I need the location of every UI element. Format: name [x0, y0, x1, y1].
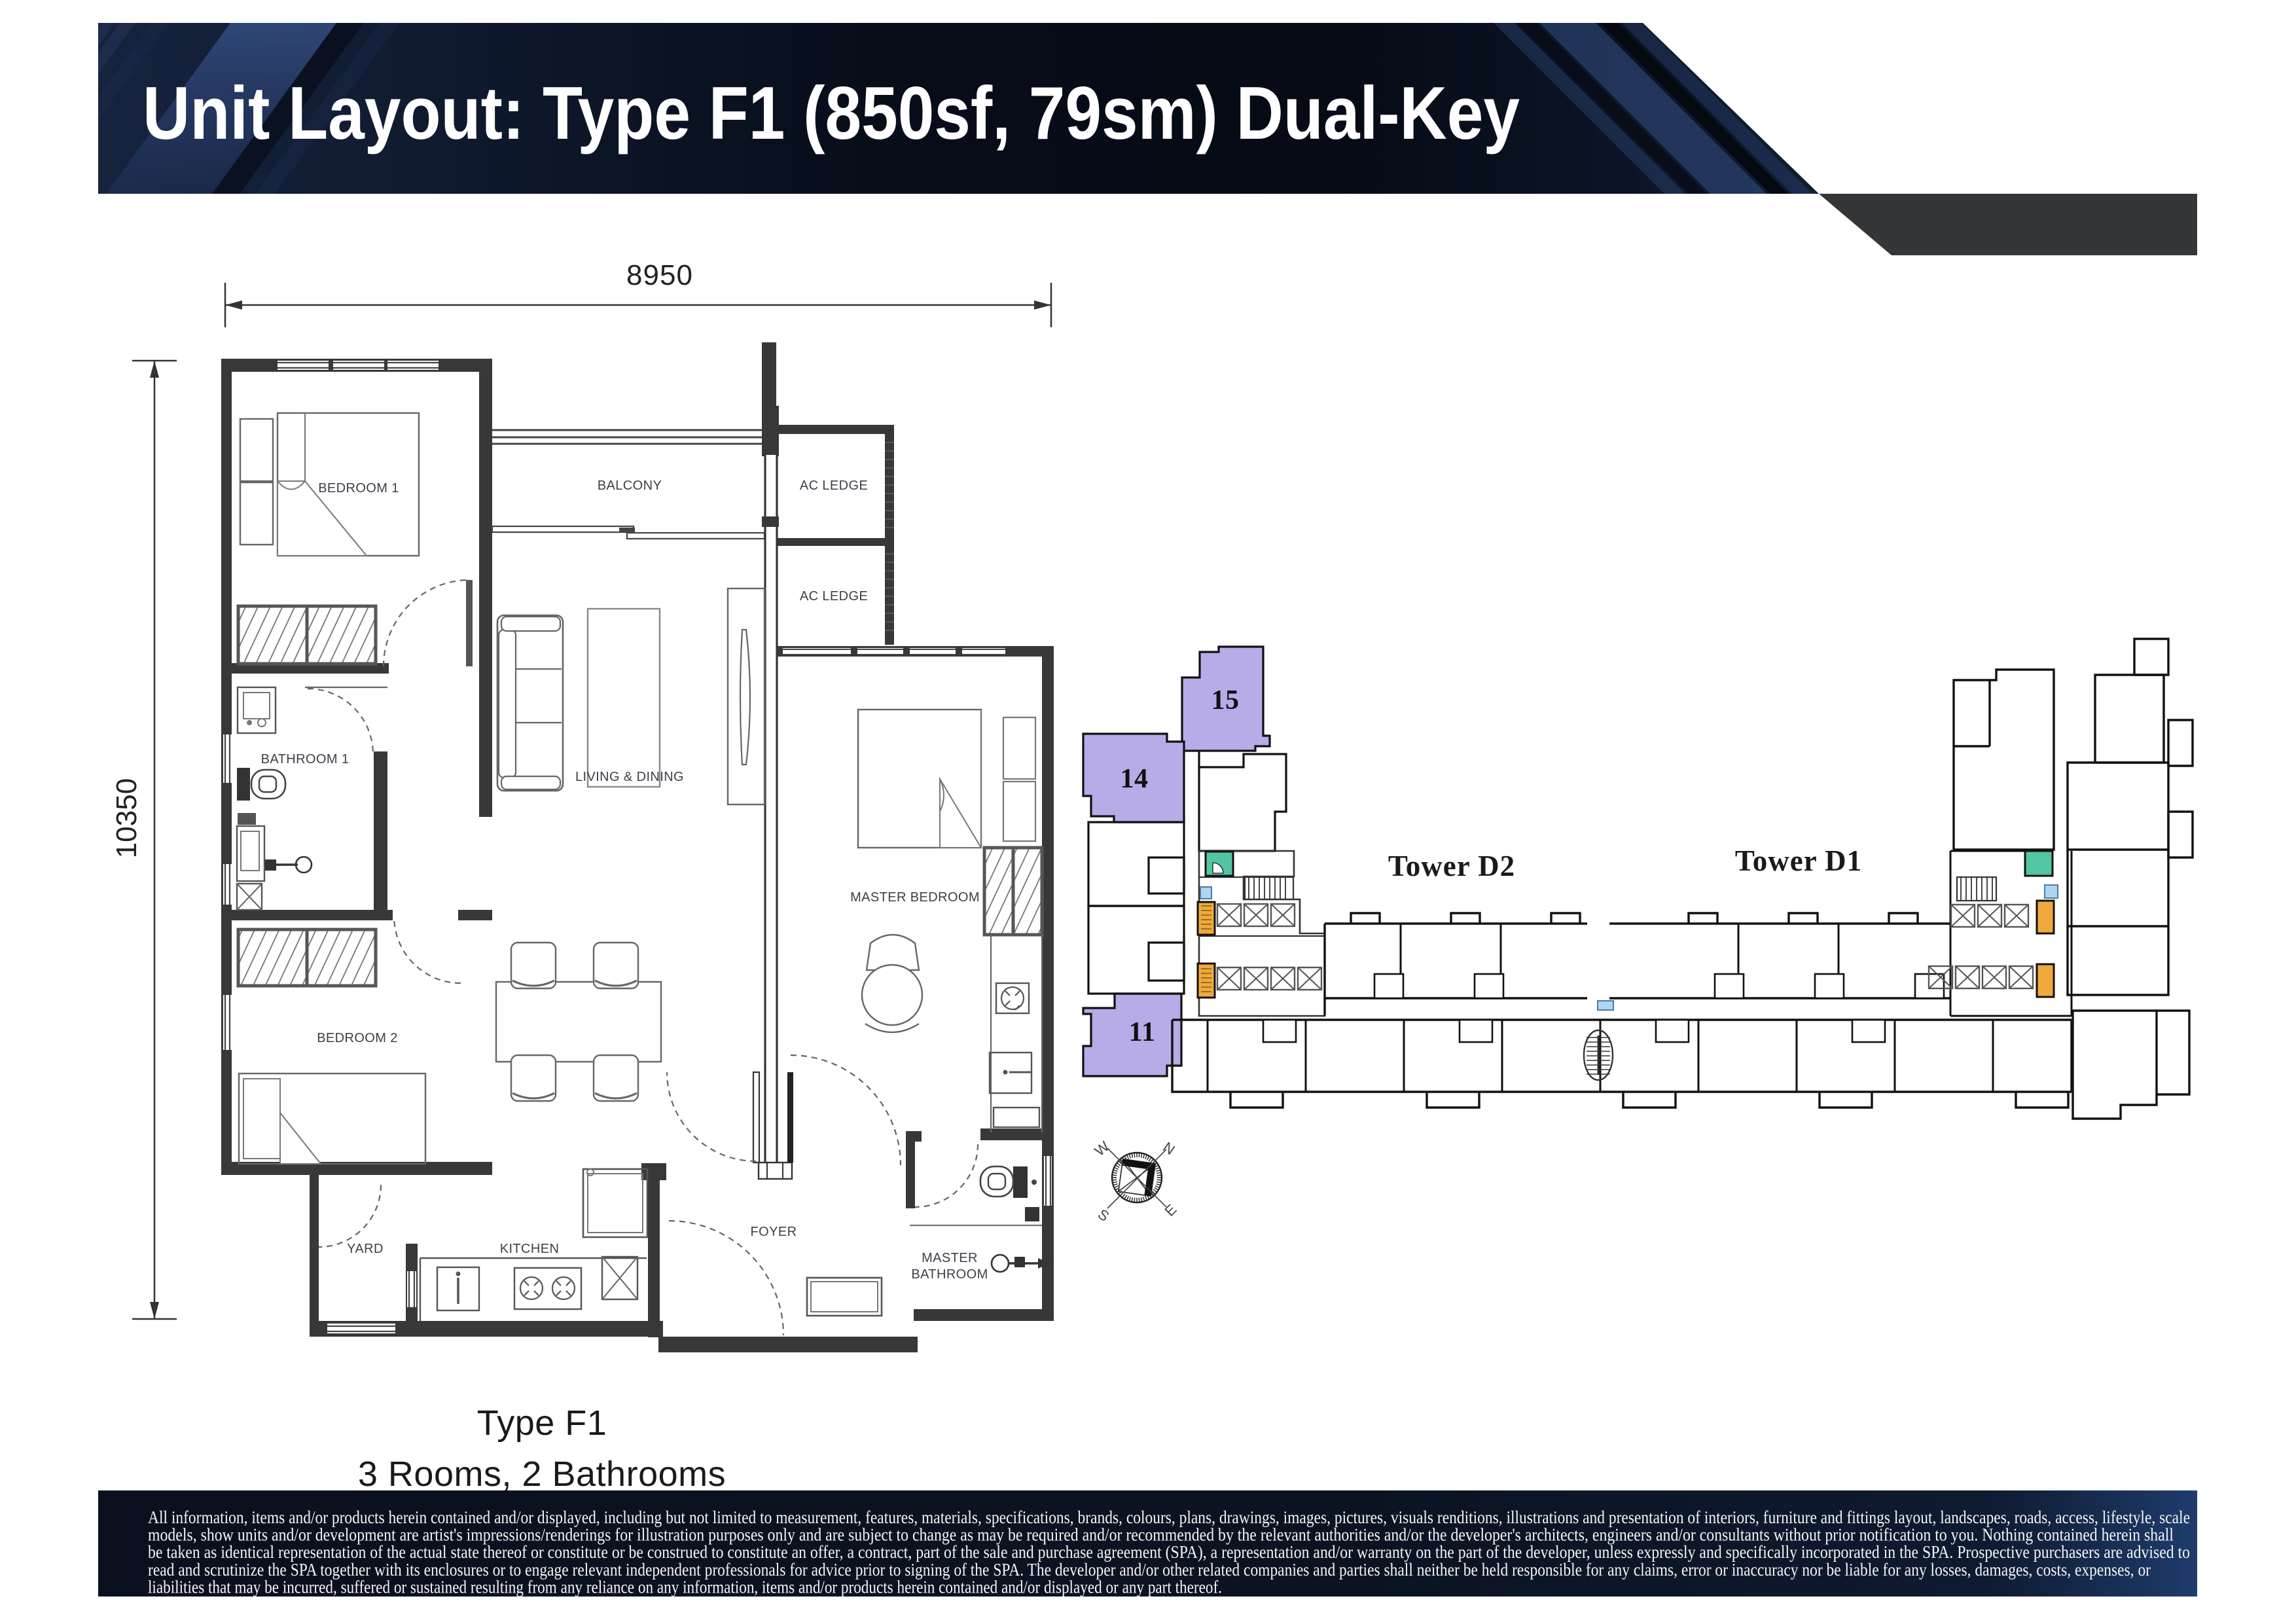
svg-text:BEDROOM 1: BEDROOM 1 [318, 481, 399, 496]
svg-text:AC LEDGE: AC LEDGE [800, 478, 868, 493]
svg-text:8950: 8950 [626, 259, 693, 291]
svg-text:15: 15 [1211, 685, 1240, 715]
svg-text:BEDROOM 2: BEDROOM 2 [317, 1031, 398, 1045]
svg-text:AC LEDGE: AC LEDGE [800, 589, 868, 604]
svg-text:MASTER: MASTER [922, 1251, 978, 1265]
svg-text:Unit Layout: Type F1 (850sf, 7: Unit Layout: Type F1 (850sf, 79sm) Dual-… [143, 72, 1520, 155]
svg-text:BATHROOM: BATHROOM [911, 1267, 988, 1282]
svg-text:E: E [1161, 1200, 1179, 1219]
svg-text:14: 14 [1121, 764, 1149, 794]
svg-text:liabilities that may be incurr: liabilities that may be incurred, suffer… [148, 1576, 1222, 1597]
svg-text:S: S [1095, 1206, 1113, 1225]
svg-text:MASTER BEDROOM: MASTER BEDROOM [850, 890, 980, 905]
svg-text:N: N [1160, 1139, 1178, 1159]
svg-text:Type F1: Type F1 [477, 1403, 607, 1443]
svg-text:3 Rooms, 2 Bathrooms: 3 Rooms, 2 Bathrooms [358, 1454, 726, 1494]
svg-text:10350: 10350 [111, 778, 143, 858]
svg-text:Tower D2: Tower D2 [1388, 850, 1515, 882]
svg-text:W: W [1091, 1138, 1112, 1159]
svg-text:Tower D1: Tower D1 [1735, 844, 1862, 877]
svg-text:BALCONY: BALCONY [598, 478, 662, 493]
svg-text:11: 11 [1129, 1017, 1156, 1047]
svg-text:KITCHEN: KITCHEN [500, 1242, 560, 1256]
svg-text:FOYER: FOYER [751, 1225, 797, 1239]
svg-text:LIVING & DINING: LIVING & DINING [575, 770, 684, 784]
svg-text:BATHROOM 1: BATHROOM 1 [261, 752, 350, 767]
svg-text:YARD: YARD [347, 1242, 384, 1256]
